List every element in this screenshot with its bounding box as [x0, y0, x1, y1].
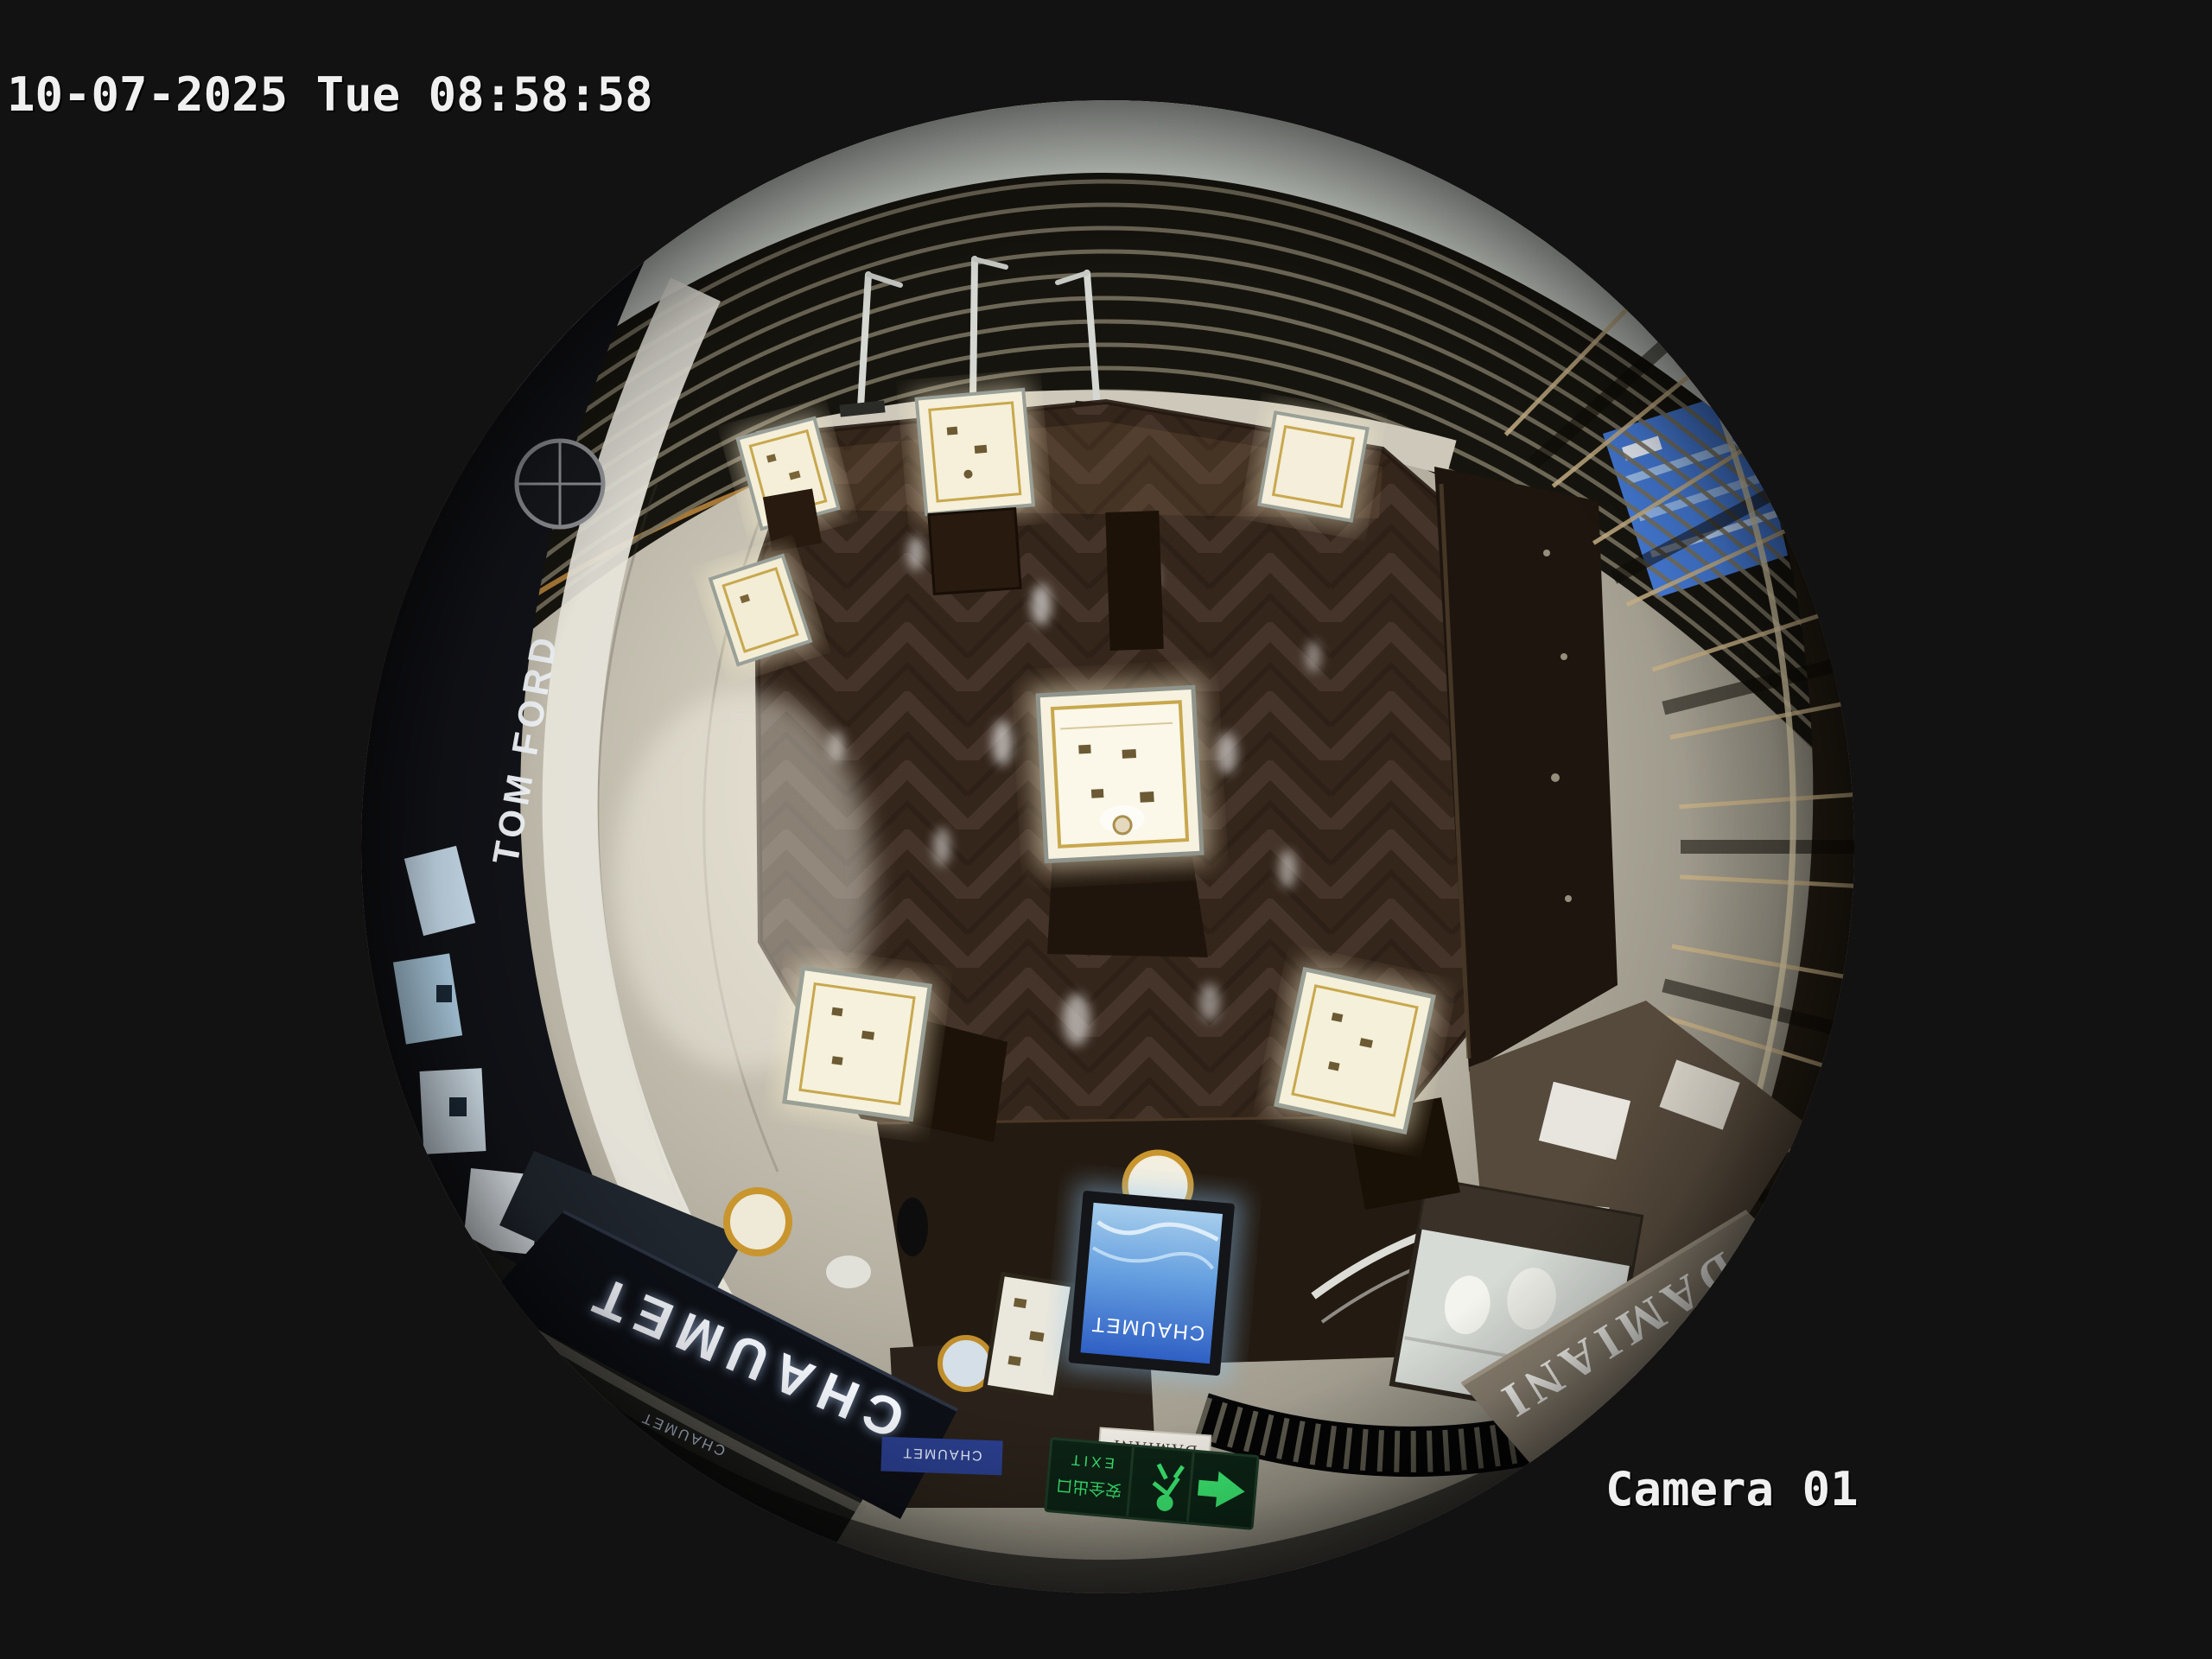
fisheye-camera-view: TOM FORD	[0, 0, 2212, 1659]
cctv-frame: TOM FORD	[0, 0, 2212, 1659]
timestamp-overlay: 10-07-2025 Tue 08:58:58	[7, 67, 653, 122]
lens-vignette	[361, 100, 1854, 1593]
fisheye-view: TOM FORD	[35, 0, 2212, 1659]
camera-label: Camera 01	[1605, 1462, 1859, 1516]
